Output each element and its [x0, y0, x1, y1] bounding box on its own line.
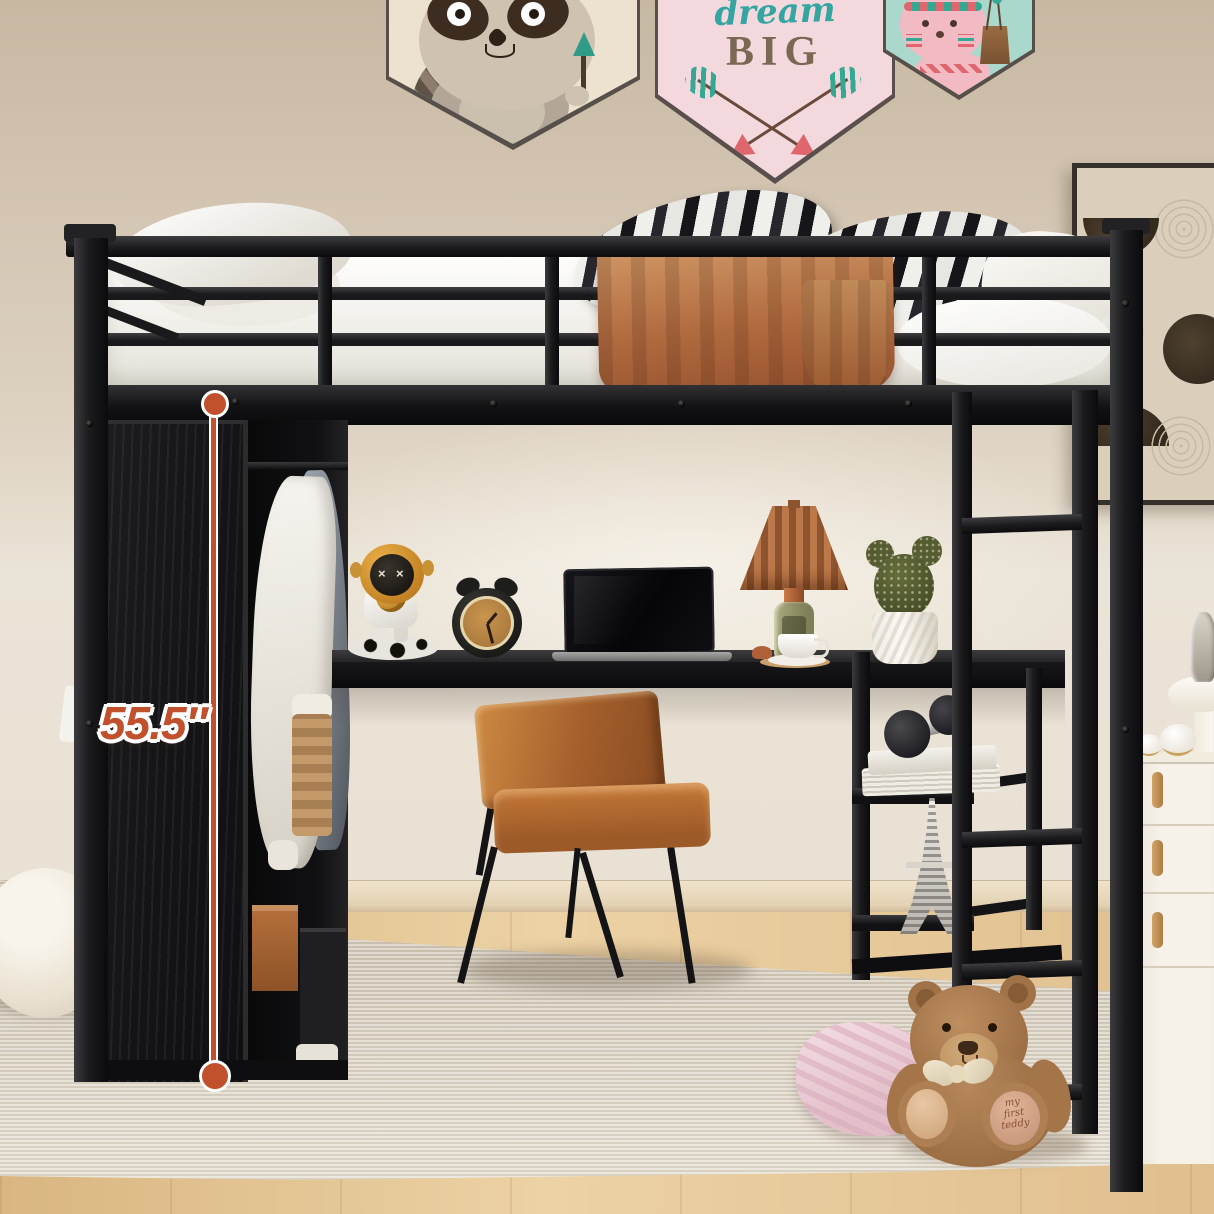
- astronaut-figurine: × ×: [346, 544, 442, 662]
- platform-screw-2: [490, 400, 497, 407]
- cactus-plant: [866, 532, 944, 664]
- bunny-quiver: [980, 26, 1010, 64]
- raccoon-pupil-right: [529, 9, 539, 19]
- astronaut-base: [348, 636, 438, 660]
- teddy-eye-right: [988, 1023, 997, 1032]
- dresser-handle-3: [1152, 912, 1163, 948]
- raccoon-pupil-left: [455, 9, 465, 19]
- left-post-screw-1: [86, 420, 93, 427]
- glass-vase: [1190, 612, 1214, 682]
- dimension-line: [209, 402, 218, 1074]
- chair-leg-back-left: [579, 852, 624, 978]
- bunny-quiver-arrow-1: [986, 0, 993, 30]
- bunny-quiver-arrow-2: [996, 0, 1002, 30]
- bedroom-scene: dream BIG: [0, 0, 1214, 1214]
- dimension-endpoint-top: [201, 390, 229, 418]
- platform-screw-3: [678, 400, 685, 407]
- art-circle-1: [1163, 314, 1214, 384]
- left-post-screw-2: [86, 720, 93, 727]
- raccoon-mouth: [485, 44, 515, 58]
- chair-leg-front-right: [667, 848, 695, 983]
- wardrobe-side-panel: [96, 420, 248, 1082]
- raccoon-arrow-head-icon: [573, 32, 595, 56]
- guardrail-post-3: [922, 256, 936, 396]
- dresser-handle-1: [1152, 772, 1163, 808]
- chair-leg-back-right: [565, 848, 580, 938]
- jar-large: [1160, 724, 1196, 756]
- bunny-headband: [904, 2, 982, 11]
- bunny-eye-left: [922, 20, 929, 27]
- ladder-rung-2: [962, 828, 1082, 848]
- right-post-screw-2: [1122, 726, 1129, 733]
- teddy-bear: my first teddy: [890, 975, 1075, 1165]
- bed-post-right: [1110, 230, 1143, 1192]
- cup-handle: [814, 638, 829, 658]
- teddy-eye-left: [942, 1023, 951, 1032]
- platform-screw-4: [905, 400, 912, 407]
- dumbbell-plate-left: [880, 706, 935, 763]
- teddy-bow-knot: [948, 1065, 966, 1083]
- bed-post-left: [74, 238, 108, 1082]
- towel-tail: [802, 280, 890, 398]
- teddy-foot-pad-left: [906, 1089, 948, 1139]
- chair-seat: [493, 782, 711, 853]
- art-ring-3: [1151, 416, 1211, 476]
- alarm-clock: [450, 576, 524, 662]
- bunny-cheek-left: [906, 34, 922, 47]
- astronaut-antenna-right: [422, 560, 434, 576]
- dimension-endpoint-bottom: [199, 1060, 231, 1092]
- ladder-right-rail: [1072, 390, 1098, 1134]
- lamp-finial: [788, 500, 800, 508]
- astronaut-antenna-left: [350, 562, 362, 578]
- astronaut-eye-x-left: ×: [378, 568, 390, 580]
- bunny-nose: [936, 31, 944, 38]
- storage-box-orange: [252, 905, 298, 991]
- right-post-screw-1: [1122, 300, 1129, 307]
- art-ring-1: [1151, 196, 1214, 262]
- dresser-handle-2: [1152, 840, 1163, 876]
- platform-screw-1: [232, 398, 239, 405]
- bunny-quiver-feather: [992, 0, 1002, 4]
- astronaut-eye-x-right: ×: [396, 568, 408, 580]
- hoodie-cuff: [268, 840, 298, 870]
- storage-bin-dark: [300, 928, 346, 1056]
- storage-basket-tan: [292, 714, 332, 836]
- coffee-cup: [778, 634, 818, 658]
- bunny-necklace: [920, 64, 982, 73]
- bunny-eye-right: [950, 20, 957, 27]
- lamp-shade: [740, 506, 848, 590]
- bunny-cheek-right: [958, 34, 974, 47]
- laptop-base: [552, 652, 732, 661]
- laptop-screen-glare: [574, 576, 704, 644]
- guardrail-post-2: [545, 256, 559, 396]
- raccoon-paw: [565, 86, 589, 106]
- teddy-nose: [958, 1041, 978, 1055]
- guardrail-post-1: [318, 256, 332, 396]
- teddy-ear-right-inner: [1008, 983, 1028, 1003]
- teddy-foot-text: my first teddy: [987, 1094, 1043, 1148]
- ladder-rung-1: [962, 514, 1082, 534]
- wardrobe-rod: [248, 462, 348, 470]
- dimension-label: 55.5″: [100, 696, 207, 750]
- cactus-ball: [874, 554, 934, 618]
- chair: [450, 690, 760, 990]
- laptop: [552, 568, 732, 664]
- guardrail-top-rail: [66, 236, 1142, 257]
